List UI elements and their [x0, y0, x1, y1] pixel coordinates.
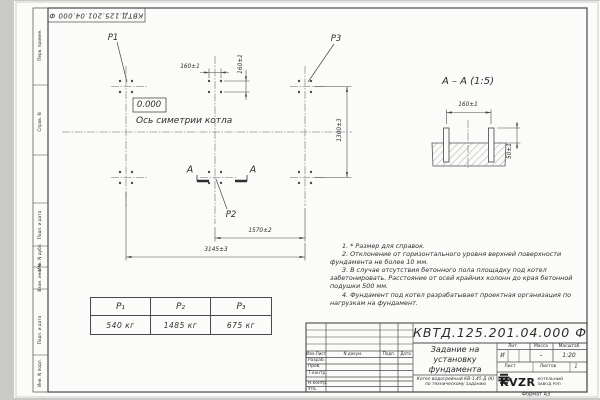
- note-item-2: 2. Отклонение от горизонтального уровня …: [330, 250, 590, 266]
- col-header-n-dokum: N докум.: [344, 352, 363, 356]
- load-table-value-p2: 1485 кг: [151, 316, 211, 334]
- dim-1570: 1570±2: [248, 229, 271, 235]
- note-item-4: 4. Фундамент под котел разрабатывает про…: [330, 291, 590, 307]
- load-point-label-p2: P2: [226, 211, 237, 220]
- notes-block: 1. * Размер для справок. 2. Отклонение о…: [330, 242, 590, 307]
- boiler-axis-label: Ось симетрии котла: [136, 117, 232, 126]
- row-label-tkontr: Т.контр.: [308, 372, 327, 376]
- lit-header: Лит.: [508, 344, 518, 348]
- cut-letter-left: А: [187, 165, 194, 175]
- row-label-prov: Пров.: [308, 365, 321, 369]
- document-title: Задание на установку фундамента: [415, 345, 495, 375]
- mass-value: –: [540, 353, 543, 359]
- mass-header: Масса: [534, 344, 548, 348]
- company-logo: KVZR КОТЕЛЬНЫЙ ЗАВОД РЭП: [498, 373, 586, 391]
- dim-1300: 1300±3: [338, 118, 344, 141]
- top-stamp-designation: КВТД.125.201.04.000 Ф: [49, 12, 143, 19]
- dim-160-horizontal: 160±1: [180, 65, 200, 71]
- row-label-utv: Утв.: [308, 388, 317, 392]
- sidebar-label-vzam-inv: Взам. инв. N: [38, 264, 42, 291]
- sidebar-label-podp-data-1: Подп. и дата: [38, 211, 42, 240]
- scale-header: Масштаб: [559, 344, 580, 348]
- col-header-izm-list: Изм.Лист: [306, 352, 326, 356]
- load-point-label-p3: P3: [331, 35, 342, 44]
- col-header-podp: Подп.: [383, 352, 395, 356]
- note-item-3: 3. В случае отсутствия бетонного пола пл…: [330, 266, 590, 290]
- section-title: А – А (1:5): [442, 77, 494, 87]
- cut-letter-right: А: [250, 165, 257, 175]
- sheet-label: Лист: [504, 365, 515, 369]
- load-table-header-p2: P₂: [151, 298, 211, 316]
- section-dim-50: 50±1: [508, 143, 514, 159]
- section-cut-marks: [197, 175, 247, 181]
- load-table-header-p3: P₃: [211, 298, 271, 316]
- sidebar-label-podp-data-2: Подп. и дата: [38, 316, 42, 345]
- sidebar-label-perv-primen: Перв. примен.: [38, 29, 42, 60]
- drawing-sheet: КВТД.125.201.04.000 Ф Перв. примен. Спра…: [0, 0, 600, 400]
- plan-dimensions: [126, 69, 352, 261]
- load-point-label-p1: P1: [108, 34, 119, 43]
- col-header-data: Дата: [400, 352, 411, 356]
- elevation-value: 0.000: [137, 101, 161, 110]
- format-label: Формат А3: [522, 393, 550, 398]
- sidebar-label-sprav-n: Справ. N: [38, 112, 42, 131]
- object-description: Котел водогрейный КВ-1,45 Д (К) по техни…: [416, 377, 495, 387]
- plan-centerlines: [62, 56, 468, 224]
- sidebar-label-inv-podl: Инв. N подл.: [38, 359, 42, 387]
- row-label-razrab: Разраб.: [308, 359, 325, 363]
- sheets-label: Листов: [540, 365, 556, 369]
- sheets-value: 1: [574, 365, 577, 370]
- section-dim-160: 160±1: [458, 103, 478, 109]
- load-table-value-p1: 540 кг: [91, 316, 151, 334]
- title-block-designation: КВТД.125.201.04.000 Ф: [413, 327, 587, 340]
- company-description: КОТЕЛЬНЫЙ ЗАВОД РЭП: [537, 377, 563, 386]
- drawing-linework: [0, 0, 600, 400]
- scale-value: 1:20: [562, 353, 575, 359]
- row-label-nkontr: Н.контр.: [308, 382, 327, 386]
- dim-160-vertical: 160±1: [239, 54, 245, 74]
- load-table-header-p1: P₁: [91, 298, 151, 316]
- load-table-value-p3: 675 кг: [211, 316, 271, 334]
- load-table: P₁ P₂ P₃ 540 кг 1485 кг 675 кг: [90, 297, 272, 335]
- dim-3145: 3145±3: [204, 248, 227, 254]
- lit-value: И: [500, 353, 505, 359]
- note-item-1: 1. * Размер для справок.: [330, 242, 590, 250]
